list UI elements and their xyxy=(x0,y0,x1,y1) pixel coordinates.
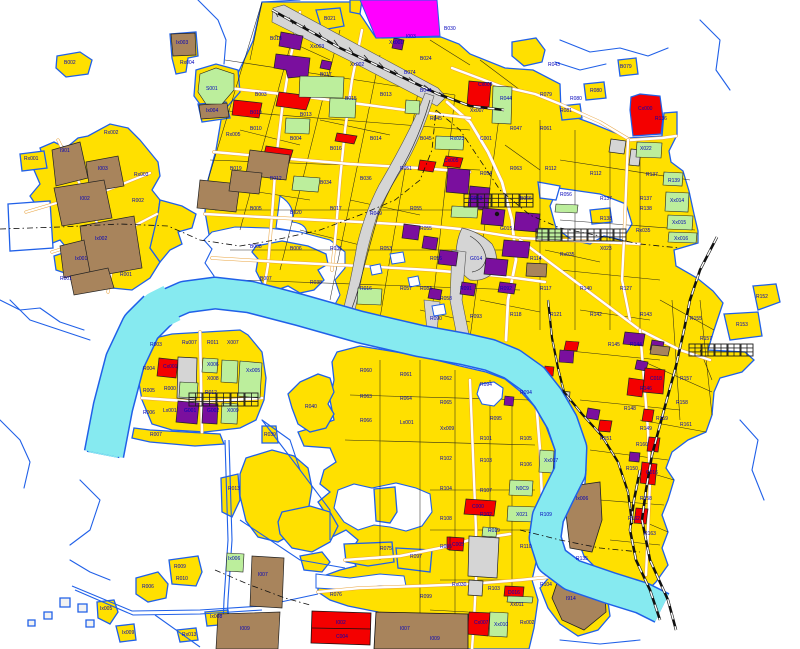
svg-text:C018: C018 xyxy=(650,376,662,382)
svg-text:R102: R102 xyxy=(480,512,492,518)
svg-text:G001: G001 xyxy=(184,408,196,414)
svg-text:R060: R060 xyxy=(360,368,372,374)
svg-text:R112: R112 xyxy=(590,171,602,177)
svg-text:R102: R102 xyxy=(440,456,452,462)
svg-text:R004: R004 xyxy=(143,366,155,372)
svg-text:R056: R056 xyxy=(430,256,442,262)
svg-text:R061: R061 xyxy=(540,126,552,132)
svg-text:R036: R036 xyxy=(330,246,342,252)
svg-text:Cx000: Cx000 xyxy=(638,106,653,112)
svg-text:R055: R055 xyxy=(420,226,432,232)
svg-text:X008: X008 xyxy=(207,376,219,382)
svg-text:R107: R107 xyxy=(480,488,492,494)
svg-text:R159: R159 xyxy=(656,416,668,422)
svg-text:R160: R160 xyxy=(636,442,648,448)
svg-text:B020: B020 xyxy=(290,210,302,216)
svg-text:R043: R043 xyxy=(548,62,560,68)
svg-text:Rx003: Rx003 xyxy=(134,172,149,178)
svg-text:Xx011: Xx011 xyxy=(510,602,524,608)
svg-text:R101: R101 xyxy=(480,436,492,442)
svg-text:R038: R038 xyxy=(310,280,322,286)
svg-text:R163: R163 xyxy=(644,531,656,537)
svg-text:R144: R144 xyxy=(630,342,642,348)
svg-text:R108: R108 xyxy=(440,516,452,522)
svg-text:R138: R138 xyxy=(600,216,612,222)
svg-text:Lx001: Lx001 xyxy=(163,408,177,414)
svg-text:Ix008: Ix008 xyxy=(210,614,222,620)
svg-text:B013: B013 xyxy=(300,112,312,118)
svg-text:R142: R142 xyxy=(590,312,602,318)
svg-text:R006: R006 xyxy=(142,584,154,590)
svg-text:Xx007: Xx007 xyxy=(470,108,484,114)
svg-text:B006: B006 xyxy=(290,246,302,252)
svg-text:R118: R118 xyxy=(510,312,522,318)
svg-text:Xx003: Xx003 xyxy=(310,44,324,50)
svg-text:C005: C005 xyxy=(452,542,464,548)
svg-text:R047: R047 xyxy=(510,126,522,132)
svg-text:R104: R104 xyxy=(440,486,452,492)
svg-text:R054: R054 xyxy=(480,171,492,177)
svg-text:Ix001: Ix001 xyxy=(75,256,87,262)
svg-text:B014: B014 xyxy=(370,136,382,142)
svg-text:R104: R104 xyxy=(540,582,552,588)
svg-text:X006: X006 xyxy=(207,362,219,368)
svg-text:R151: R151 xyxy=(600,436,612,442)
svg-text:R155: R155 xyxy=(690,316,702,322)
svg-text:Ix005: Ix005 xyxy=(100,606,112,612)
svg-text:I002: I002 xyxy=(80,196,90,202)
svg-text:Ix006: Ix006 xyxy=(228,556,240,562)
svg-text:B002: B002 xyxy=(64,60,76,66)
svg-text:R103: R103 xyxy=(480,458,492,464)
svg-text:R140: R140 xyxy=(580,286,592,292)
svg-text:R064: R064 xyxy=(400,396,412,402)
svg-text:R002: R002 xyxy=(132,198,144,204)
svg-text:R117: R117 xyxy=(540,286,552,292)
svg-text:B018: B018 xyxy=(270,36,282,42)
svg-text:R063: R063 xyxy=(360,394,372,400)
svg-text:R080: R080 xyxy=(570,96,582,102)
svg-text:Rx001: Rx001 xyxy=(24,156,39,162)
svg-text:I901: I901 xyxy=(60,148,70,154)
svg-text:R138: R138 xyxy=(640,206,652,212)
svg-text:B019: B019 xyxy=(250,110,262,116)
svg-text:I009: I009 xyxy=(430,636,440,642)
svg-text:C001: C001 xyxy=(480,136,492,142)
svg-text:B074: B074 xyxy=(404,70,416,76)
svg-text:R121: R121 xyxy=(550,312,562,318)
svg-text:R099: R099 xyxy=(420,594,432,600)
svg-text:B015: B015 xyxy=(345,96,357,102)
svg-text:R019: R019 xyxy=(488,528,500,534)
svg-text:R127: R127 xyxy=(620,286,632,292)
svg-text:B012: B012 xyxy=(270,176,282,182)
svg-text:Xx005: Xx005 xyxy=(246,368,260,374)
svg-text:R097: R097 xyxy=(410,554,422,560)
svg-text:R079: R079 xyxy=(540,92,552,98)
svg-text:R158: R158 xyxy=(640,496,652,502)
svg-text:R065: R065 xyxy=(440,400,452,406)
svg-text:S001: S001 xyxy=(206,86,218,92)
svg-text:I007: I007 xyxy=(400,626,410,632)
svg-text:Rx002: Rx002 xyxy=(104,130,119,136)
svg-text:R044: R044 xyxy=(500,96,512,102)
svg-text:R056: R056 xyxy=(560,192,572,198)
svg-text:Rx004: Rx004 xyxy=(180,60,195,66)
svg-text:I009: I009 xyxy=(240,626,250,632)
svg-text:R080: R080 xyxy=(590,88,602,94)
svg-text:R012: R012 xyxy=(205,390,217,396)
svg-text:I914: I914 xyxy=(566,596,576,602)
svg-text:R162: R162 xyxy=(628,516,640,522)
svg-text:Xx015: Xx015 xyxy=(672,220,686,226)
svg-text:R145: R145 xyxy=(608,342,620,348)
svg-text:Xx017: Xx017 xyxy=(544,458,558,464)
svg-text:R076: R076 xyxy=(330,592,342,598)
svg-text:R075: R075 xyxy=(380,546,392,552)
svg-text:B017: B017 xyxy=(330,206,342,212)
svg-text:R081: R081 xyxy=(560,108,572,114)
svg-text:C000: C000 xyxy=(472,504,484,510)
svg-text:R109: R109 xyxy=(540,512,552,518)
svg-text:I002: I002 xyxy=(336,620,346,626)
svg-text:R053: R053 xyxy=(380,246,392,252)
svg-text:R051: R051 xyxy=(400,166,412,172)
svg-text:X007: X007 xyxy=(227,340,239,346)
svg-text:R083: R083 xyxy=(420,286,432,292)
svg-text:R139: R139 xyxy=(668,178,680,184)
svg-text:R040: R040 xyxy=(305,404,317,410)
svg-text:Cx001: Cx001 xyxy=(163,364,178,370)
svg-text:R062: R062 xyxy=(440,376,452,382)
svg-text:R110: R110 xyxy=(520,544,532,550)
svg-text:B004: B004 xyxy=(290,136,302,142)
svg-text:R006: R006 xyxy=(143,410,155,416)
svg-text:Xx010: Xx010 xyxy=(494,622,508,628)
svg-text:Rx013: Rx013 xyxy=(182,632,197,638)
svg-text:C004: C004 xyxy=(336,634,348,640)
svg-text:R106: R106 xyxy=(520,462,532,468)
svg-text:D016: D016 xyxy=(508,590,520,596)
svg-text:Rx005: Rx005 xyxy=(226,132,241,138)
svg-text:B044: B044 xyxy=(420,88,432,94)
svg-text:R001: R001 xyxy=(60,276,72,282)
svg-text:R039: R039 xyxy=(264,432,276,438)
svg-text:Ix006: Ix006 xyxy=(576,496,588,502)
svg-text:R152: R152 xyxy=(756,294,768,300)
svg-text:B008: B008 xyxy=(250,244,262,250)
svg-text:B036: B036 xyxy=(360,176,372,182)
svg-text:Ru007: Ru007 xyxy=(182,340,197,346)
svg-text:B016: B016 xyxy=(330,146,342,152)
svg-text:Xx016: Xx016 xyxy=(674,236,688,242)
svg-text:R136: R136 xyxy=(655,116,667,122)
svg-text:R158: R158 xyxy=(676,400,688,406)
svg-text:Rx030: Rx030 xyxy=(452,582,467,588)
svg-text:R161: R161 xyxy=(680,422,692,428)
svg-text:Rx035: Rx035 xyxy=(560,252,575,258)
svg-text:G002: G002 xyxy=(207,408,219,414)
svg-text:G015: G015 xyxy=(500,226,512,232)
svg-text:B005: B005 xyxy=(250,206,262,212)
svg-text:B079: B079 xyxy=(620,64,632,70)
svg-text:R010: R010 xyxy=(176,576,188,582)
svg-text:R013: R013 xyxy=(228,486,240,492)
svg-text:B013: B013 xyxy=(380,92,392,98)
svg-text:R057: R057 xyxy=(400,286,412,292)
svg-text:R055: R055 xyxy=(410,206,422,212)
svg-text:R157: R157 xyxy=(680,376,692,382)
svg-text:R000: R000 xyxy=(164,386,176,392)
svg-text:G013: G013 xyxy=(470,196,482,202)
svg-text:X023: X023 xyxy=(600,246,612,252)
svg-text:Xx001: Xx001 xyxy=(389,40,403,46)
svg-text:N0C9: N0C9 xyxy=(516,486,529,492)
svg-text:B024: B024 xyxy=(420,56,432,62)
svg-text:R049: R049 xyxy=(370,211,382,217)
svg-text:R103: R103 xyxy=(488,586,500,592)
svg-text:R137: R137 xyxy=(646,172,658,178)
svg-text:R093: R093 xyxy=(470,314,482,320)
svg-text:I007: I007 xyxy=(258,572,268,578)
svg-text:I003: I003 xyxy=(406,34,416,40)
svg-text:R095: R095 xyxy=(440,544,452,550)
svg-text:B030: B030 xyxy=(444,26,456,32)
svg-text:R005: R005 xyxy=(143,388,155,394)
svg-text:R045: R045 xyxy=(430,116,442,122)
svg-text:X009: X009 xyxy=(227,408,239,414)
svg-text:R001: R001 xyxy=(120,272,132,278)
svg-text:R092: R092 xyxy=(500,286,512,292)
svg-text:R003: R003 xyxy=(150,342,162,348)
svg-text:Ix003: Ix003 xyxy=(176,40,188,46)
svg-text:B066: B066 xyxy=(520,196,532,202)
svg-text:R150: R150 xyxy=(626,466,638,472)
svg-text:X022: X022 xyxy=(640,146,652,152)
svg-text:Ix009: Ix009 xyxy=(122,630,134,636)
svg-text:Xx002: Xx002 xyxy=(350,62,364,68)
svg-text:Cx009: Cx009 xyxy=(478,82,493,88)
svg-text:Xx009: Xx009 xyxy=(440,426,454,432)
svg-text:R094: R094 xyxy=(520,390,532,396)
svg-text:R094: R094 xyxy=(480,382,492,388)
svg-text:I003: I003 xyxy=(98,166,108,172)
svg-text:B045: B045 xyxy=(420,136,432,142)
svg-text:R153: R153 xyxy=(736,322,748,328)
svg-text:R149: R149 xyxy=(640,426,652,432)
svg-text:G014: G014 xyxy=(470,256,482,262)
svg-text:R009: R009 xyxy=(174,564,186,570)
svg-text:R157: R157 xyxy=(700,336,712,342)
svg-text:R135: R135 xyxy=(576,556,588,562)
svg-text:R148: R148 xyxy=(624,406,636,412)
svg-text:R095: R095 xyxy=(490,416,502,422)
svg-text:B017: B017 xyxy=(320,72,332,78)
svg-text:R112: R112 xyxy=(545,166,557,172)
svg-text:C016: C016 xyxy=(646,470,658,476)
svg-text:B019: B019 xyxy=(230,166,242,172)
svg-text:R143: R143 xyxy=(640,312,652,318)
svg-text:Cx005: Cx005 xyxy=(444,158,459,164)
svg-text:R137: R137 xyxy=(640,196,652,202)
svg-text:R058: R058 xyxy=(440,296,452,302)
svg-text:R007: R007 xyxy=(150,432,162,438)
svg-text:R105: R105 xyxy=(520,436,532,442)
svg-text:Lx001: Lx001 xyxy=(400,420,414,426)
svg-text:B007: B007 xyxy=(260,276,272,282)
svg-text:Cx007: Cx007 xyxy=(474,620,489,626)
svg-text:R090: R090 xyxy=(430,316,442,322)
svg-text:Rx035: Rx035 xyxy=(636,228,651,234)
svg-text:B010: B010 xyxy=(250,126,262,132)
svg-text:R114: R114 xyxy=(530,256,542,262)
svg-text:Ix004: Ix004 xyxy=(206,108,218,114)
svg-text:R137: R137 xyxy=(600,196,612,202)
svg-text:Ix002: Ix002 xyxy=(95,236,107,242)
svg-text:B021: B021 xyxy=(324,16,336,22)
svg-text:B034: B034 xyxy=(320,180,332,186)
svg-text:R146: R146 xyxy=(640,386,652,392)
svg-text:X021: X021 xyxy=(516,512,528,518)
svg-text:B003: B003 xyxy=(255,92,267,98)
svg-text:R091: R091 xyxy=(460,286,472,292)
svg-text:R063: R063 xyxy=(510,166,522,172)
svg-text:R016: R016 xyxy=(360,286,372,292)
svg-text:Rx002: Rx002 xyxy=(520,620,535,626)
svg-text:R061: R061 xyxy=(400,372,412,378)
svg-text:Rx023: Rx023 xyxy=(450,136,465,142)
svg-text:R011: R011 xyxy=(207,340,219,346)
svg-text:R066: R066 xyxy=(360,418,372,424)
svg-text:Xx014: Xx014 xyxy=(670,198,684,204)
